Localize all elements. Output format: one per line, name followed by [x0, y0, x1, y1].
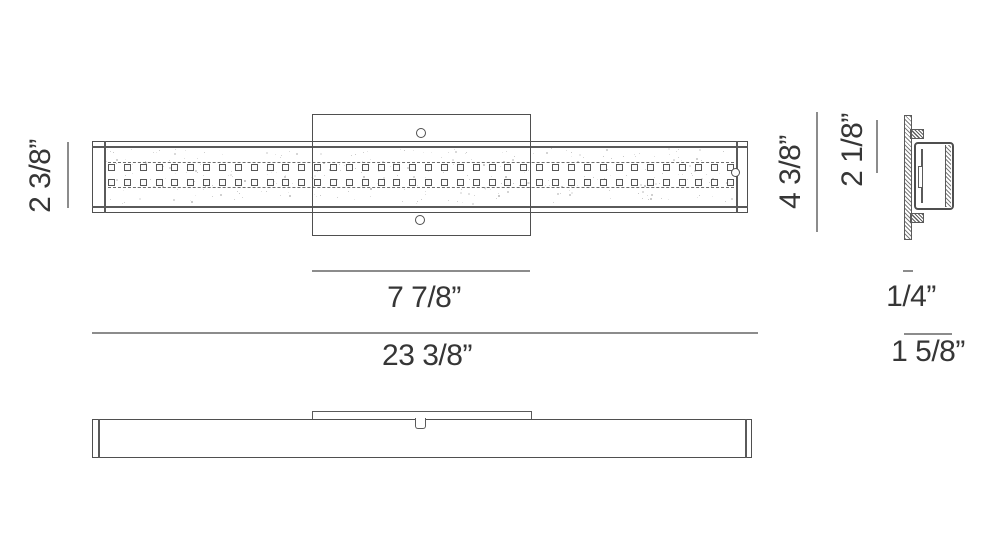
speckle-dot — [661, 198, 662, 199]
crystal — [552, 179, 559, 186]
speckle-dot — [583, 157, 584, 158]
speckle-dot — [289, 195, 291, 197]
crystal — [156, 179, 163, 186]
speckle-dot — [169, 160, 170, 161]
speckle-dot — [642, 198, 643, 199]
dimension-drawing: 2 3/8” 7 7/8” 23 3/8” 4 3/8” 2 1/8” 1/4”… — [0, 0, 1000, 555]
speckle-dot — [132, 173, 133, 174]
speckle-dot — [706, 174, 707, 175]
crystal — [536, 164, 543, 171]
crystal — [171, 179, 178, 186]
speckle-dot — [609, 190, 610, 191]
crystal — [282, 179, 289, 186]
crystal — [568, 164, 575, 171]
crystal — [647, 164, 654, 171]
crystal — [600, 179, 607, 186]
speckle-dot — [593, 177, 594, 178]
speckle-dot — [197, 172, 198, 173]
speckle-dot — [228, 175, 229, 176]
crystal — [108, 164, 115, 171]
crystal — [647, 179, 654, 186]
speckle-dot — [280, 195, 281, 196]
crystal — [124, 164, 131, 171]
speckle-dot — [723, 151, 724, 152]
crystal — [108, 179, 115, 186]
crystal — [124, 179, 131, 186]
crystal — [298, 164, 305, 171]
crystal — [679, 179, 686, 186]
speckle-dot — [634, 154, 635, 155]
speckle-dot — [281, 155, 282, 156]
crystal — [568, 179, 575, 186]
crystal — [187, 179, 194, 186]
speckle-dot — [699, 195, 700, 196]
speckle-dot — [125, 175, 126, 176]
speckle-dot — [611, 158, 612, 159]
speckle-dot — [699, 149, 701, 151]
speckle-dot — [712, 196, 713, 197]
speckle-dot — [731, 198, 733, 200]
crystal — [219, 164, 226, 171]
speckle-dot — [681, 160, 682, 161]
speckle-dot — [571, 192, 573, 194]
crystal — [695, 179, 702, 186]
dim-line-body-height — [876, 120, 878, 173]
speckle-dot — [296, 153, 298, 155]
speckle-dot — [668, 199, 669, 200]
speckle-dot — [175, 149, 176, 150]
crystal — [695, 164, 702, 171]
speckle-dot — [237, 191, 238, 192]
dim-line-overall-height — [816, 112, 818, 232]
speckle-dot — [191, 201, 193, 203]
speckle-dot — [284, 176, 286, 178]
dim-label-body-height: 2 1/8” — [835, 85, 871, 215]
speckle-dot — [610, 175, 611, 176]
crystal — [267, 179, 274, 186]
dim-label-extension-depth: 1 5/8” — [868, 334, 988, 370]
crystal — [140, 164, 147, 171]
speckle-dot — [175, 173, 176, 174]
crystal — [203, 164, 210, 171]
speckle-dot — [220, 194, 222, 196]
crystal — [711, 179, 718, 186]
screw-hole-bottom — [415, 215, 425, 225]
crystal — [251, 164, 258, 171]
crystal — [711, 164, 718, 171]
speckle-dot — [642, 191, 644, 193]
dim-label-canopy-width: 7 7/8” — [344, 280, 504, 316]
speckle-dot — [280, 157, 281, 158]
speckle-dot — [691, 173, 692, 174]
crystal — [235, 164, 242, 171]
speckle-dot — [719, 173, 720, 174]
speckle-dot — [261, 191, 262, 192]
speckle-dot — [560, 193, 561, 194]
crystal — [187, 164, 194, 171]
crystal — [282, 164, 289, 171]
speckle-dot — [222, 154, 223, 155]
bar-right-endcap-line — [736, 141, 738, 213]
speckle-dot — [288, 192, 289, 193]
speckle-dot — [153, 152, 154, 153]
lens-edge-strip — [945, 145, 951, 207]
speckle-dot — [266, 191, 267, 192]
speckle-dot — [662, 173, 663, 174]
crystal — [663, 164, 670, 171]
speckle-dot — [626, 175, 627, 176]
speckle-dot — [131, 149, 132, 150]
speckle-dot — [557, 193, 559, 195]
crystal — [616, 179, 623, 186]
speckle-dot — [725, 201, 726, 202]
dim-line-canopy-depth — [903, 270, 913, 272]
dim-line-canopy-width — [312, 270, 530, 272]
speckle-dot — [569, 194, 571, 196]
crystal — [140, 179, 147, 186]
speckle-dot — [195, 195, 196, 196]
dim-label-canopy-depth: 1/4” — [851, 279, 971, 315]
dim-label-fixture-height: 2 3/8” — [23, 111, 59, 241]
crystal — [203, 179, 210, 186]
crystal — [584, 179, 591, 186]
speckle-dot — [174, 153, 176, 155]
speckle-dot — [197, 158, 198, 159]
crystal — [584, 164, 591, 171]
crystal — [663, 179, 670, 186]
crystal — [536, 179, 543, 186]
speckle-dot — [648, 199, 649, 200]
crystal — [171, 164, 178, 171]
mounting-screw-top — [910, 129, 924, 139]
crystal — [235, 179, 242, 186]
speckle-dot — [139, 198, 141, 200]
speckle-dot — [266, 152, 268, 154]
speckle-dot — [242, 197, 243, 198]
crystal — [156, 164, 163, 171]
speckle-dot — [177, 189, 178, 190]
speckle-dot — [697, 197, 698, 198]
speckle-dot — [571, 152, 572, 153]
crystal — [298, 179, 305, 186]
speckle-dot — [682, 174, 683, 175]
speckle-dot — [159, 150, 160, 151]
speckle-dot — [696, 158, 698, 160]
crystal — [679, 164, 686, 171]
speckle-dot — [107, 149, 108, 150]
speckle-dot — [654, 177, 655, 178]
speckle-dot — [231, 171, 232, 172]
crystal — [631, 179, 638, 186]
speckle-dot — [267, 174, 268, 175]
speckle-dot — [204, 152, 205, 153]
speckle-dot — [203, 175, 204, 176]
speckle-dot — [553, 202, 554, 203]
speckle-dot — [203, 189, 204, 190]
screw-hole-top — [416, 128, 426, 138]
bottom-right-endcap-line — [745, 419, 747, 458]
speckle-dot — [186, 172, 187, 173]
speckle-dot — [623, 156, 624, 157]
speckle-dot — [289, 151, 290, 152]
speckle-dot — [635, 156, 636, 157]
speckle-dot — [638, 193, 639, 194]
speckle-dot — [110, 199, 111, 200]
speckle-dot — [571, 156, 572, 157]
speckle-dot — [275, 154, 276, 155]
speckle-dot — [185, 150, 186, 151]
speckle-dot — [678, 174, 679, 175]
crystal — [631, 164, 638, 171]
speckle-dot — [654, 156, 655, 157]
dim-label-fixture-width: 23 3/8” — [347, 338, 507, 374]
crystal — [727, 179, 734, 186]
speckle-dot — [639, 153, 640, 154]
speckle-dot — [173, 199, 175, 201]
speckle-dot — [569, 190, 570, 191]
speckle-dot — [110, 151, 111, 152]
speckle-dot — [647, 195, 648, 196]
speckle-dot — [271, 172, 272, 173]
body-mount-tab — [918, 166, 923, 188]
dim-label-overall-height: 4 3/8” — [773, 107, 809, 237]
speckle-dot — [692, 175, 693, 176]
speckle-dot — [156, 152, 157, 153]
speckle-dot — [650, 198, 652, 200]
speckle-dot — [276, 172, 277, 173]
speckle-dot — [668, 148, 670, 150]
speckle-dot — [124, 202, 125, 203]
speckle-dot — [533, 153, 534, 154]
speckle-dot — [610, 198, 611, 199]
crystal — [251, 179, 258, 186]
crystal — [552, 164, 559, 171]
speckle-dot — [651, 194, 653, 196]
speckle-dot — [678, 157, 679, 158]
crystal — [267, 164, 274, 171]
speckle-dot — [669, 154, 670, 155]
speckle-dot — [673, 159, 675, 161]
speckle-dot — [122, 203, 123, 204]
crystal — [616, 164, 623, 171]
bottom-left-endcap-line — [98, 419, 100, 458]
speckle-dot — [232, 176, 233, 177]
speckle-dot — [546, 152, 548, 154]
speckle-dot — [676, 151, 677, 152]
speckle-dot — [123, 190, 124, 191]
speckle-dot — [212, 196, 213, 197]
crystal — [600, 164, 607, 171]
wire-notch — [415, 418, 426, 429]
speckle-dot — [603, 156, 604, 157]
speckle-dot — [579, 154, 581, 156]
speckle-dot — [606, 149, 608, 151]
speckle-dot — [113, 152, 114, 153]
crystal — [219, 179, 226, 186]
speckle-dot — [239, 193, 240, 194]
dim-line-fixture-height — [67, 142, 69, 208]
dim-line-fixture-width — [92, 332, 758, 334]
speckle-dot — [566, 150, 567, 151]
speckle-dot — [678, 149, 679, 150]
speckle-dot — [551, 148, 552, 149]
end-connector-circle — [731, 168, 740, 177]
speckle-dot — [116, 159, 118, 161]
speckle-dot — [184, 158, 185, 159]
speckle-dot — [125, 159, 126, 160]
speckle-dot — [234, 199, 235, 200]
speckle-dot — [584, 176, 585, 177]
mounting-screw-bottom — [910, 213, 924, 223]
